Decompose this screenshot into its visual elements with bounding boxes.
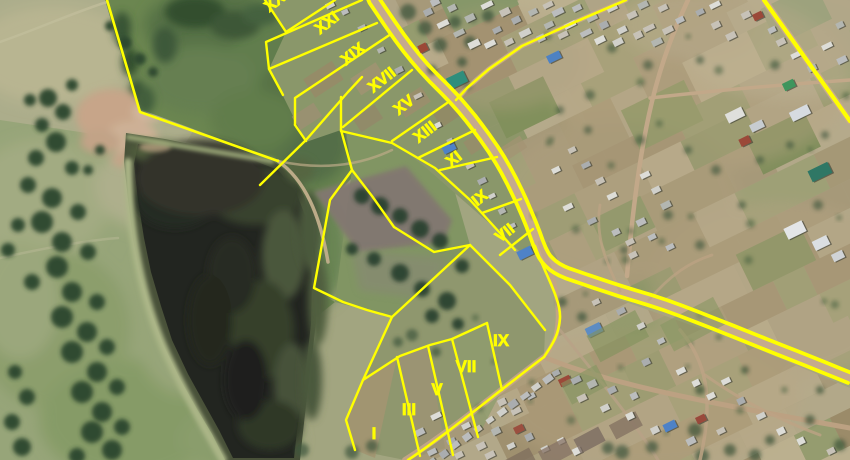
svg-text:VII: VII: [456, 357, 477, 376]
svg-text:IX: IX: [493, 331, 510, 350]
svg-text:III: III: [402, 400, 416, 419]
svg-text:V: V: [431, 380, 443, 399]
svg-text:I: I: [372, 424, 377, 443]
